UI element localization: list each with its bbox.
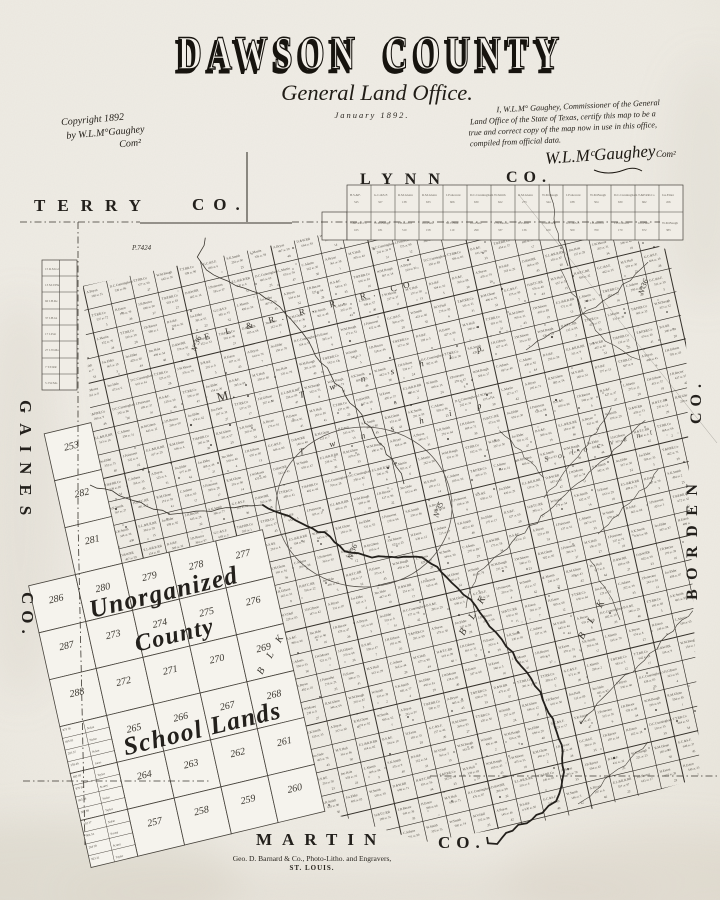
svg-text:R.M.Glenn: R.M.Glenn [398,193,413,197]
svg-text:633: 633 [426,200,431,204]
svg-text:662: 662 [642,200,647,204]
svg-text:B.S.&F.: B.S.&F. [350,193,361,197]
svg-text:5 J.W.Mo: 5 J.W.Mo [45,381,58,385]
svg-text:37 J.H.Gi: 37 J.H.Gi [45,316,57,320]
svg-text:170: 170 [618,228,623,232]
svg-text:700: 700 [594,228,599,232]
svg-text:CO.: CO. [506,169,552,186]
svg-text:60 J.B.Re: 60 J.B.Re [45,299,58,303]
svg-text:Com²: Com² [656,149,676,159]
svg-text:GAINES: GAINES [16,400,35,525]
svg-text:545: 545 [354,200,359,204]
svg-text:CO.: CO. [438,833,486,852]
svg-text:ST. LOUIS.: ST. LOUIS. [289,864,334,872]
svg-text:January 1892.: January 1892. [334,110,409,120]
svg-text:630: 630 [618,200,623,204]
svg-text:158: 158 [426,228,431,232]
svg-text:17 J.Poit: 17 J.Poit [45,332,56,336]
svg-text:630: 630 [474,200,479,204]
svg-text:138: 138 [402,200,407,204]
svg-text:D.C.Cunningham: D.C.Cunningham [470,193,494,197]
svg-text:CO.: CO. [18,592,37,640]
svg-text:General Land Office.: General Land Office. [281,80,473,105]
svg-text:CO.: CO. [192,195,249,214]
svg-text:W.M.Baugh: W.M.Baugh [662,221,678,225]
svg-text:7 T.T.RR: 7 T.T.RR [45,365,57,369]
svg-text:606: 606 [450,200,455,204]
svg-text:13 M.V.Hu: 13 M.V.Hu [45,283,60,287]
svg-text:510: 510 [402,228,407,232]
svg-text:J.Poitevent: J.Poitevent [566,193,581,197]
svg-text:CO.: CO. [688,378,705,424]
svg-text:181: 181 [378,228,383,232]
svg-text:136: 136 [522,228,527,232]
svg-text:BORDEN: BORDEN [684,475,701,600]
svg-text:27 J.W.Mo: 27 J.W.Mo [45,348,59,352]
svg-text:W.Smith: W.Smith [494,193,506,197]
svg-text:MARTIN: MARTIN [256,830,386,849]
svg-text:504: 504 [594,200,599,204]
svg-text:456: 456 [666,200,671,204]
svg-text:337: 337 [498,228,503,232]
svg-text:509: 509 [570,228,575,232]
svg-text:P.7424: P.7424 [131,244,152,252]
svg-text:LYNN: LYNN [360,171,452,188]
svg-text:G.C.&S.F.: G.C.&S.F. [374,193,388,197]
svg-text:327: 327 [378,200,383,204]
svg-text:DAWSON COUNTY: DAWSON COUNTY [178,27,566,79]
svg-text:344: 344 [546,200,551,204]
svg-text:J.Poitevent: J.Poitevent [446,193,461,197]
svg-text:15 R.M.Gl: 15 R.M.Gl [45,267,59,271]
svg-text:165: 165 [354,228,359,232]
svg-text:D.C.Cunningham: D.C.Cunningham [614,193,638,197]
svg-text:R.M.Glenn: R.M.Glenn [422,193,437,197]
svg-text:672: 672 [642,228,647,232]
svg-text:299: 299 [474,228,479,232]
svg-text:Jas.Elder: Jas.Elder [662,193,675,197]
svg-text:188: 188 [570,200,575,204]
svg-text:Com²: Com² [119,137,143,150]
svg-text:110: 110 [450,228,455,232]
svg-text:TERRY: TERRY [34,196,153,215]
svg-text:T.&P.RR.Co: T.&P.RR.Co [638,193,655,197]
svg-text:Geo. D. Barnard & Co., Photo-L: Geo. D. Barnard & Co., Photo-Litho. and … [233,854,392,863]
svg-text:W.M.Baugh: W.M.Baugh [590,193,606,197]
svg-text:383: 383 [666,228,671,232]
svg-text:622: 622 [498,200,503,204]
